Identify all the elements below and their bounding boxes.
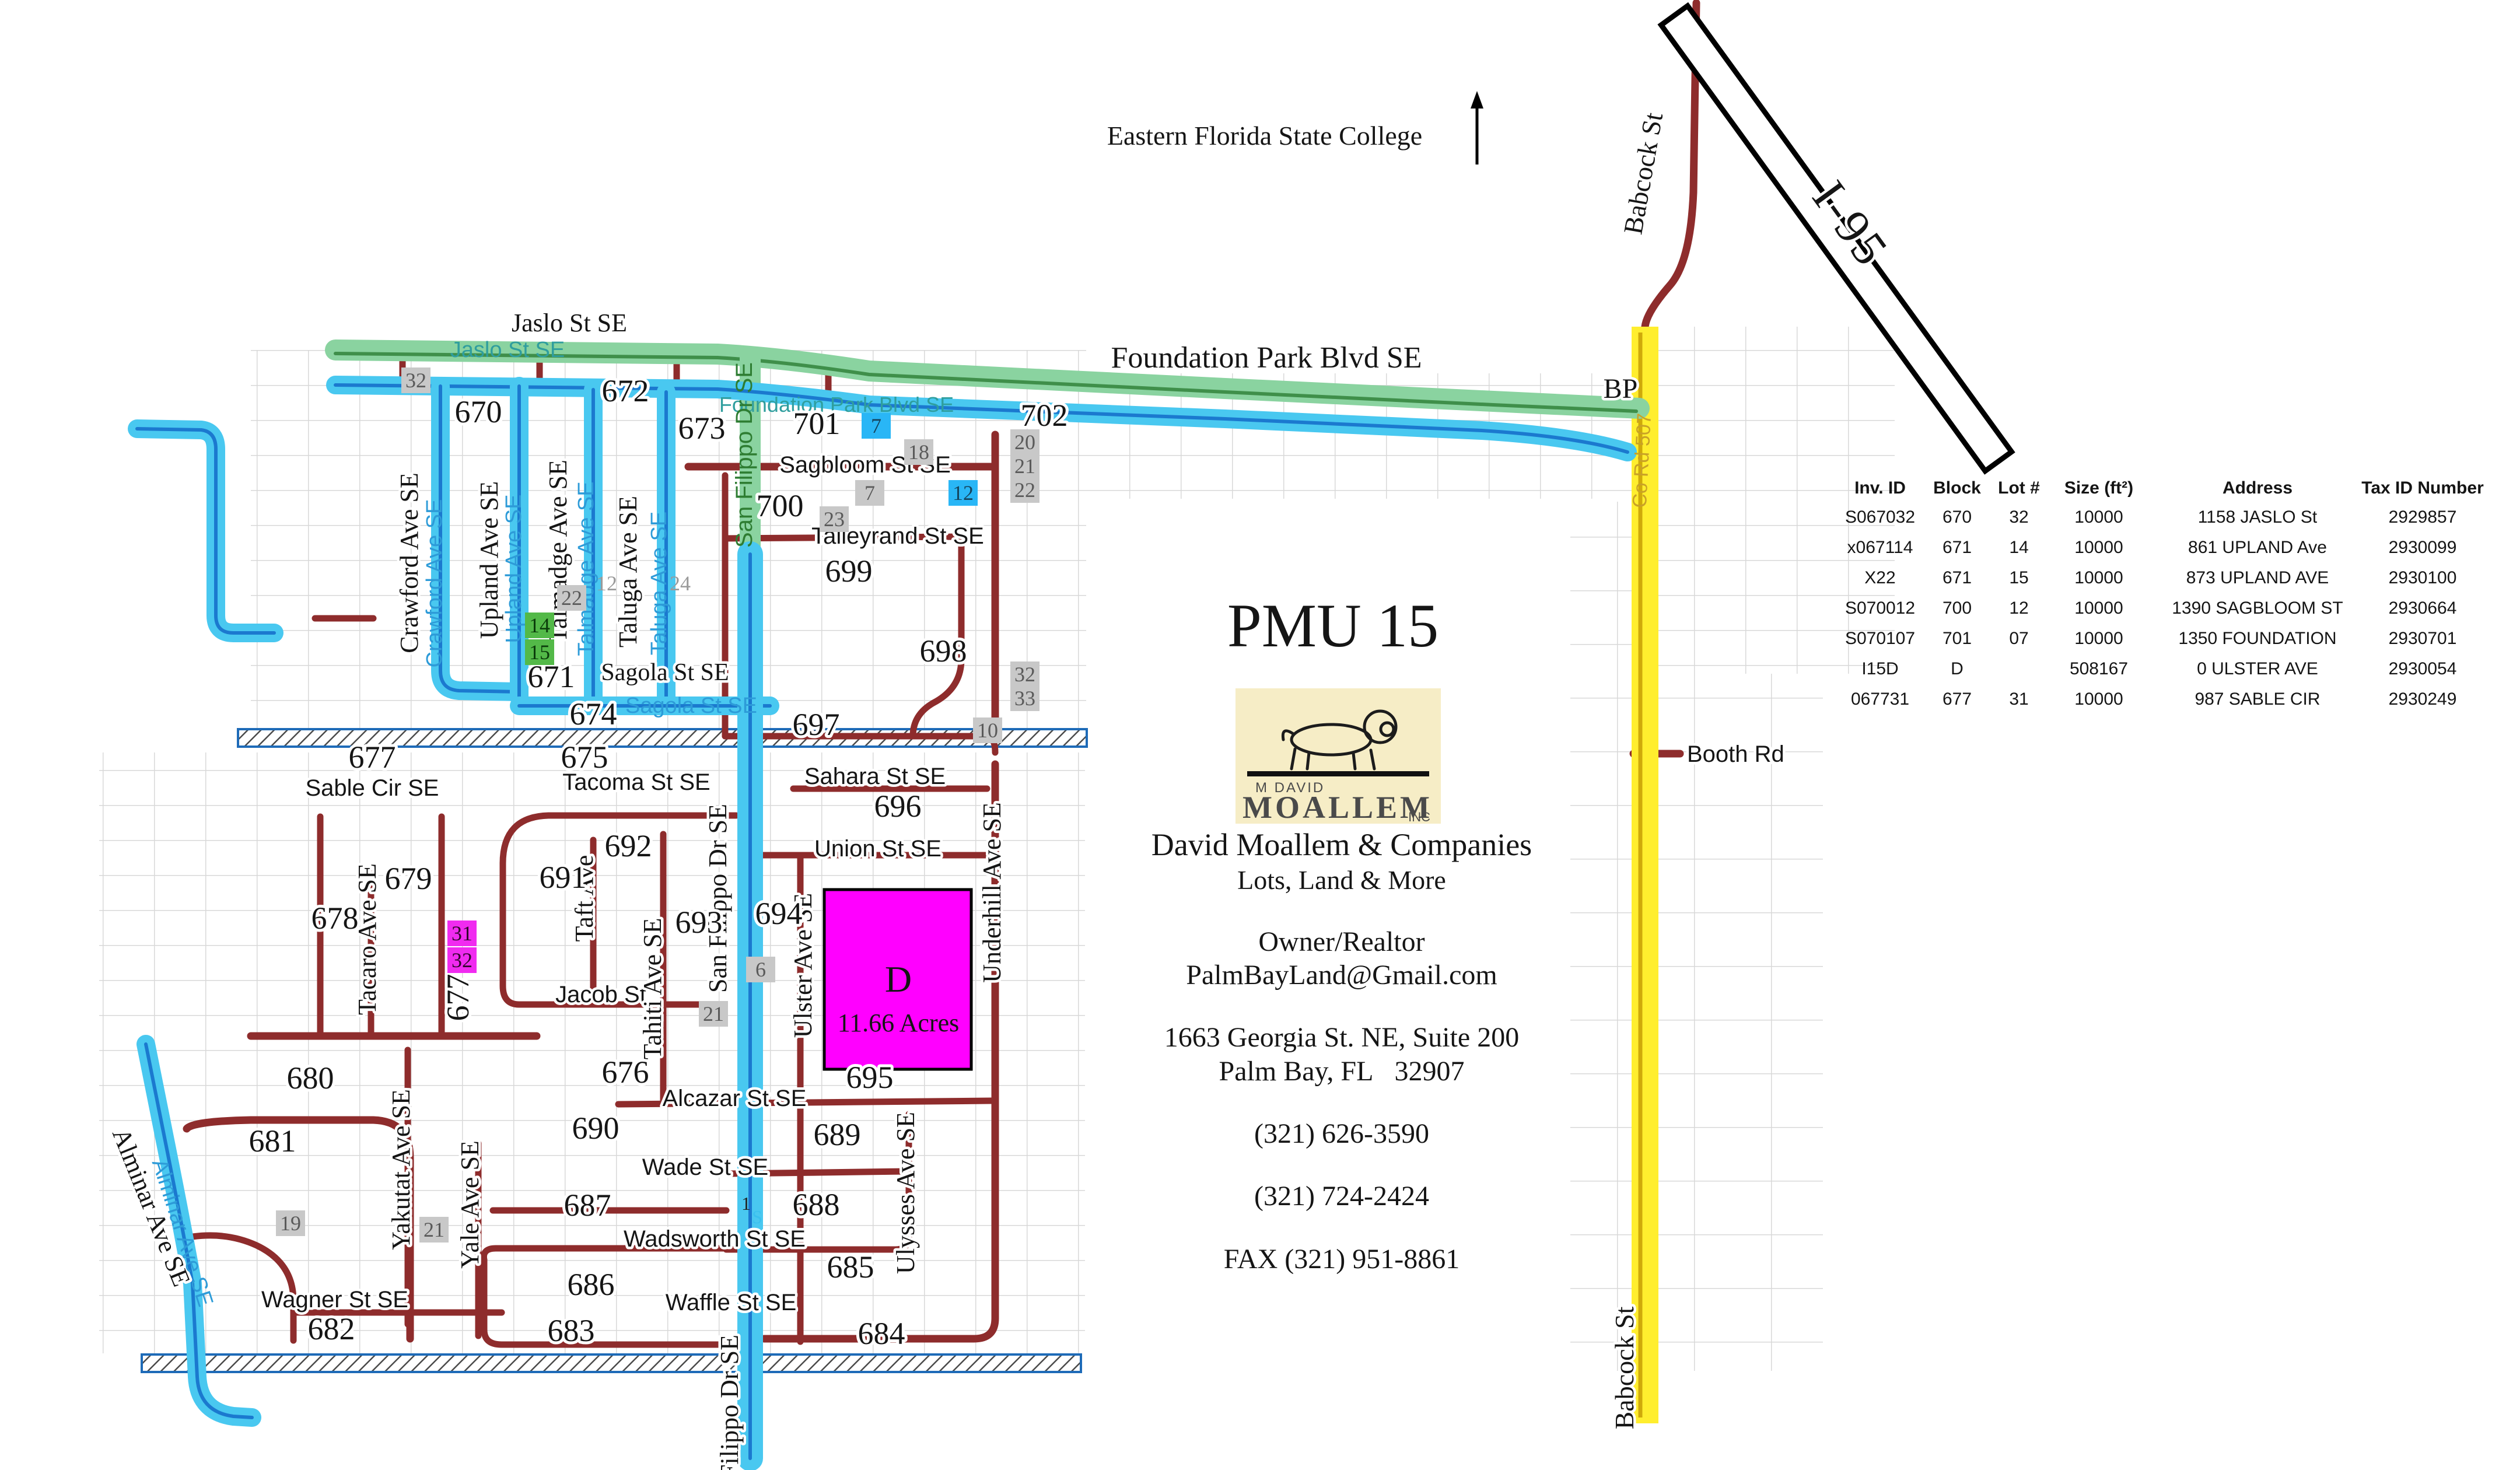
block-number-b673: 673 [678, 411, 726, 446]
street-label-yakutat: Yakutat Ave SE [387, 1089, 415, 1250]
lot-number-b7: 7 [871, 414, 881, 437]
table-cell-r3c2: 12 [2009, 598, 2028, 618]
logo-sub-text: INC [1408, 810, 1430, 824]
street-label-taluga_black: Taluga Ave SE [614, 496, 642, 647]
lot-number-g32b: 32 [1014, 663, 1035, 686]
block-number-b685: 685 [827, 1249, 874, 1284]
street-label-upland_black: Upland Ave SE [475, 481, 503, 639]
block-number-b692: 692 [605, 828, 652, 863]
block-number-b672: 672 [602, 373, 649, 408]
table-cell-r1c5: 2930099 [2389, 538, 2457, 557]
parcel-d-letter: D [885, 958, 912, 1000]
table-header-3: Size (ft²) [2064, 478, 2133, 498]
table-cell-r3c5: 2930664 [2389, 598, 2457, 618]
street-label-underhill: Underhill Ave SE [978, 802, 1006, 983]
logo-name-text: MOALLEM [1242, 790, 1433, 825]
table-cell-r5c0: I15D [1861, 659, 1898, 678]
contact-company: David Moallem & Companies [1151, 827, 1532, 862]
street-label-sanfilippo_bottom: San Filippo Dr SE [715, 1335, 744, 1470]
lot-number-g19: 19 [280, 1212, 301, 1235]
table-cell-r0c3: 10000 [2074, 508, 2123, 527]
table-cell-r3c4: 1390 SAGBLOOM ST [2172, 598, 2343, 618]
table-cell-r5c5: 2930054 [2389, 659, 2457, 678]
table-cell-r5c1: D [1951, 659, 1964, 678]
table-cell-r2c4: 873 UPLAND AVE [2186, 568, 2329, 587]
street-label-crawford_inline: Crawford Ave SE [422, 499, 447, 668]
lot-number-gr14: 14 [529, 614, 550, 637]
table-cell-r6c2: 31 [2009, 689, 2028, 709]
street-label-foundation_big: Foundation Park Blvd SE [1111, 341, 1422, 374]
table-header-0: Inv. ID [1854, 478, 1906, 498]
lot-number-g33: 33 [1014, 687, 1035, 710]
street-label-alcazar: Alcazar St SE [663, 1086, 807, 1111]
street-label-babcock_top: Babcock St [1618, 110, 1668, 237]
table-cell-r0c2: 32 [2009, 508, 2028, 527]
table-cell-r2c3: 10000 [2074, 568, 2123, 587]
table-cell-r5c3: 508167 [2070, 659, 2128, 678]
table-cell-r0c1: 670 [1943, 508, 1972, 527]
table-cell-r4c4: 1350 FOUNDATION [2178, 629, 2336, 648]
table-cell-r0c5: 2929857 [2389, 508, 2457, 527]
street-label-sable: Sable Cir SE [306, 775, 439, 801]
block-number-b691: 691 [540, 860, 587, 895]
block-number-b695: 695 [846, 1060, 894, 1095]
lot-number-t1: 1 [741, 1193, 751, 1214]
street-label-wagner: Wagner St SE [261, 1287, 408, 1312]
block-number-b698: 698 [920, 633, 967, 668]
contact-phone2: (321) 724-2424 [1254, 1181, 1429, 1212]
street-label-sanfilippo_inline_green: San Filippo Dr SE [731, 362, 757, 548]
block-number-b674: 674 [570, 696, 617, 731]
contact-address1: 1663 Georgia St. NE, Suite 200 [1164, 1022, 1519, 1053]
block-number-b684: 684 [858, 1316, 905, 1351]
table-cell-r0c4: 1158 JASLO St [2198, 508, 2318, 527]
street-label-jacob: Jacob St [555, 982, 646, 1007]
table-header-5: Tax ID Number [2361, 478, 2484, 498]
table-cell-r4c3: 10000 [2074, 629, 2123, 648]
lot-number-b12: 12 [953, 481, 974, 505]
block-number-b670: 670 [455, 394, 502, 429]
block-number-b677r: 677 [440, 974, 475, 1021]
table-cell-r2c2: 15 [2009, 568, 2028, 587]
street-label-jaslo_big: Jaslo St SE [512, 309, 627, 337]
table-cell-r6c3: 10000 [2074, 689, 2123, 709]
lot-number-g21a: 21 [1014, 454, 1035, 478]
inventory-table: Inv. IDBlockLot #Size (ft²)AddressTax ID… [1845, 478, 2484, 709]
map-canvas: Jaslo St SEFoundation Park Blvd SEEaster… [0, 0, 2520, 1470]
table-cell-r1c1: 671 [1943, 538, 1972, 557]
lot-number-g21c: 21 [423, 1218, 444, 1241]
lot-number-g32: 32 [405, 369, 426, 392]
street-label-wadsworth: Wadsworth St SE [624, 1226, 806, 1252]
block-number-b675: 675 [561, 740, 608, 775]
table-cell-r6c5: 2930249 [2389, 689, 2457, 709]
lot-number-g21b: 21 [703, 1002, 724, 1025]
block-number-b677: 677 [349, 740, 396, 775]
contact-fax: FAX (321) 951-8861 [1224, 1244, 1459, 1275]
street-label-sagola_black: Sagola St SE [601, 659, 729, 686]
block-number-b676: 676 [602, 1055, 649, 1090]
block-number-b683: 683 [548, 1313, 595, 1348]
street-label-tahiti: Tahiti Ave SE [638, 918, 667, 1060]
table-cell-r2c5: 2930100 [2389, 568, 2457, 587]
street-label-sanfilippo_mid: San Filippo Dr SE [703, 804, 732, 993]
block-number-b686: 686 [568, 1267, 615, 1302]
lot-number-g20: 20 [1014, 430, 1035, 454]
table-cell-r6c0: 067731 [1851, 689, 1909, 709]
logo-rule [1247, 771, 1429, 776]
table-cell-r1c2: 14 [2009, 538, 2028, 557]
block-number-b682: 682 [308, 1311, 355, 1346]
block-number-b681: 681 [249, 1123, 296, 1158]
block-number-b694: 694 [755, 896, 803, 931]
block-number-b700: 700 [757, 488, 804, 523]
block-number-b678: 678 [311, 901, 359, 936]
table-cell-r2c0: X22 [1864, 568, 1895, 587]
lot-number-g10: 10 [977, 719, 998, 742]
table-header-4: Address [2222, 478, 2292, 498]
contact-phone1: (321) 626-3590 [1254, 1118, 1429, 1149]
street-label-union: Union St SE [814, 836, 942, 862]
contact-address2: Palm Bay, FL 32907 [1219, 1056, 1465, 1087]
lot-number-g6: 6 [755, 958, 766, 981]
block-number-b689: 689 [814, 1117, 861, 1152]
block-number-b702: 702 [1021, 398, 1068, 433]
block-number-b687: 687 [564, 1188, 611, 1223]
lot-number-gr15: 15 [529, 640, 550, 664]
street-label-waffle: Waffle St SE [666, 1290, 797, 1315]
street-label-crawford_black: Crawford Ave SE [395, 473, 423, 653]
street-label-babcock_bottom: Babcock St [1609, 1306, 1639, 1429]
table-cell-r4c1: 701 [1943, 629, 1972, 648]
lot-number-tS: S [752, 1206, 762, 1227]
lot-number-g18: 18 [908, 440, 929, 464]
block-number-b693: 693 [675, 905, 723, 940]
street-label-yale: Yale Ave SE [456, 1140, 484, 1269]
table-cell-r3c0: S070012 [1845, 598, 1915, 618]
table-cell-r2c1: 671 [1943, 568, 1972, 587]
contact-email: PalmBayLand@Gmail.com [1186, 960, 1497, 991]
lot-number-m31: 31 [452, 922, 473, 945]
street-label-booth: Booth Rd [1687, 741, 1784, 767]
lot-number-g23: 23 [824, 508, 845, 531]
street-label-tacaro: Tacaro Ave SE [353, 863, 381, 1015]
table-cell-r4c5: 2930701 [2389, 629, 2457, 648]
block-number-b697: 697 [793, 707, 840, 742]
railroad-corridor-lower [142, 1354, 1081, 1372]
table-cell-r0c0: S067032 [1845, 508, 1915, 527]
block-number-b688: 688 [793, 1187, 840, 1222]
north-arrow [1471, 91, 1483, 164]
table-header-1: Block [1933, 478, 1981, 498]
table-header-2: Lot # [1998, 478, 2040, 498]
lot-number-p24: 24 [670, 572, 691, 595]
block-number-b699: 699 [825, 554, 873, 589]
lot-number-m32: 32 [452, 949, 473, 972]
street-label-upland_inline: Upland Ave SE [502, 495, 526, 643]
page-title: PMU 15 [1227, 591, 1438, 660]
table-cell-r1c3: 10000 [2074, 538, 2123, 557]
lot-number-g22b: 22 [561, 586, 582, 610]
street-label-taluga_inline: Taluga Ave SE [647, 512, 671, 655]
street-label-talmadge_inline: Talmadge Ave SE [574, 481, 598, 656]
table-cell-r1c0: x067114 [1847, 538, 1913, 557]
table-cell-r5c4: 0 ULSTER AVE [2197, 659, 2318, 678]
street-label-wade: Wade St SE [642, 1154, 768, 1180]
street-label-ulysses: Ulysses Ave SE [891, 1112, 920, 1274]
table-cell-r6c4: 987 SABLE CIR [2194, 689, 2320, 709]
table-cell-r4c2: 07 [2009, 629, 2028, 648]
table-cell-r3c3: 10000 [2074, 598, 2123, 618]
contact-role: Owner/Realtor [1258, 926, 1424, 957]
table-cell-r6c1: 677 [1943, 689, 1972, 709]
street-label-bp: BP [1604, 373, 1638, 404]
street-label-jaslo_inline: Jaslo St SE [450, 338, 565, 362]
table-cell-r4c0: S070107 [1845, 629, 1915, 648]
contact-tagline: Lots, Land & More [1237, 865, 1446, 895]
block-number-b696: 696 [874, 789, 922, 824]
table-cell-r3c1: 700 [1943, 598, 1972, 618]
block-number-b679: 679 [385, 861, 432, 896]
table-cell-r1c4: 861 UPLAND Ave [2188, 538, 2327, 557]
street-label-college: Eastern Florida State College [1107, 121, 1422, 150]
lot-number-p12: 12 [596, 572, 617, 595]
block-number-b680: 680 [287, 1060, 334, 1095]
street-label-sahara: Sahara St SE [804, 764, 946, 789]
block-number-b690: 690 [572, 1111, 619, 1146]
street-label-sagola_inline: Sagola St SE [625, 694, 757, 718]
pmu15-map-flyer: Jaslo St SEFoundation Park Blvd SEEaster… [0, 0, 2520, 1470]
parcel-d-area: 11.66 Acres [838, 1009, 960, 1037]
lot-number-g7: 7 [864, 481, 875, 505]
lot-number-g22a: 22 [1014, 478, 1035, 502]
block-number-b701: 701 [793, 406, 841, 441]
